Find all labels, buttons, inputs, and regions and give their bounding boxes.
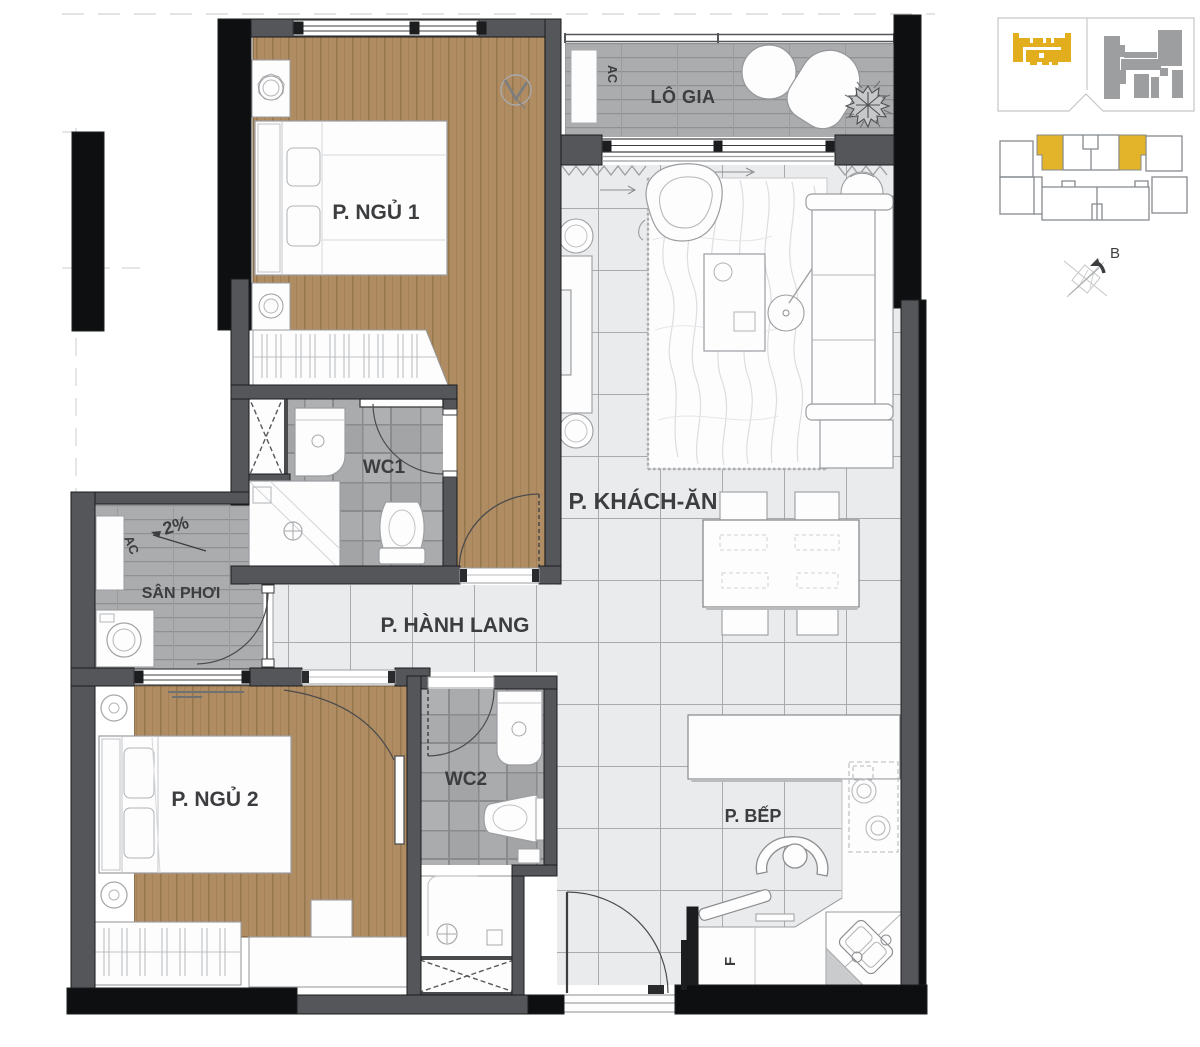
svg-text:WC2: WC2 <box>445 769 487 790</box>
svg-text:B: B <box>1110 245 1120 262</box>
svg-text:SÂN PHƠI: SÂN PHƠI <box>142 583 221 602</box>
svg-text:P. KHÁCH-ĂN: P. KHÁCH-ĂN <box>568 487 717 514</box>
svg-text:P. HÀNH LANG: P. HÀNH LANG <box>381 614 530 637</box>
svg-text:AC: AC <box>605 65 619 83</box>
svg-text:F: F <box>722 957 739 966</box>
svg-text:LÔ GIA: LÔ GIA <box>651 86 716 107</box>
svg-text:WC1: WC1 <box>363 457 406 478</box>
svg-text:P. NGỦ 2: P. NGỦ 2 <box>171 787 258 811</box>
svg-text:P. BẾP: P. BẾP <box>725 805 782 826</box>
svg-text:P. NGỦ 1: P. NGỦ 1 <box>332 200 419 224</box>
